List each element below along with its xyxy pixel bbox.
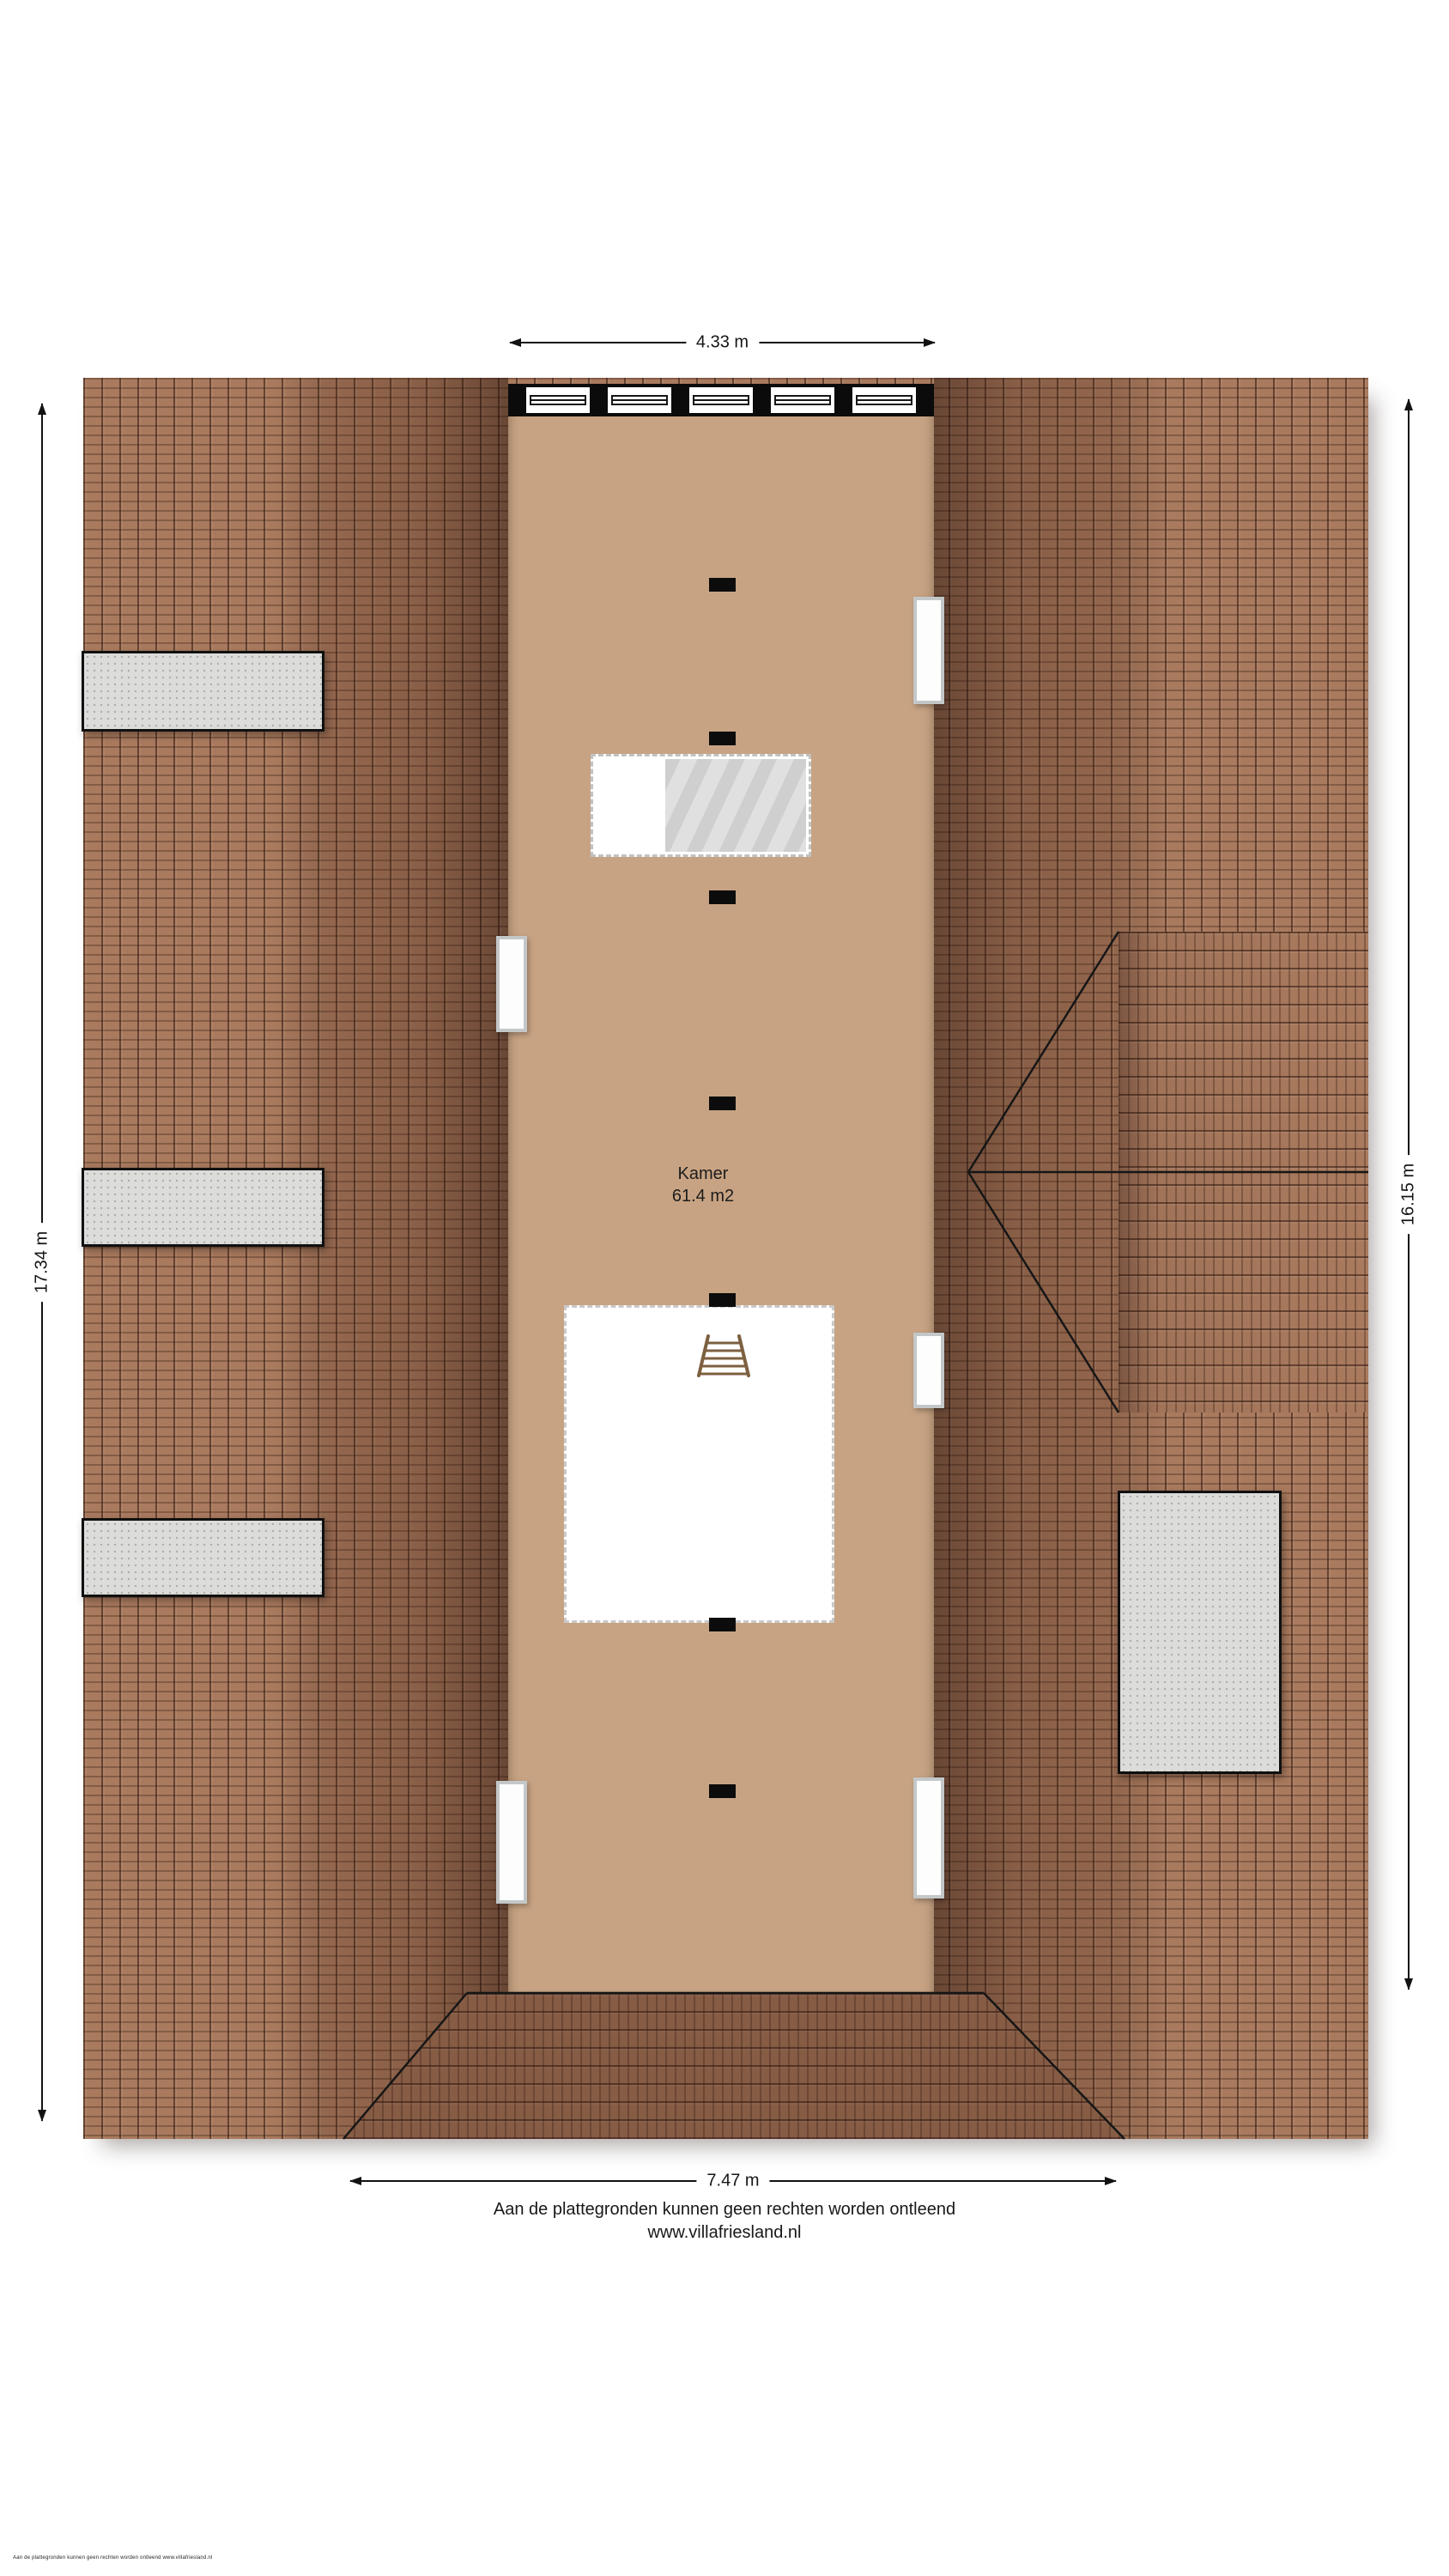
- roof-window: [913, 597, 944, 704]
- roof-slope-left: [324, 378, 508, 2139]
- wall-stub: [709, 1618, 736, 1631]
- facade-window: [689, 387, 753, 413]
- room-name: Kamer: [609, 1163, 797, 1185]
- room-area: 61.4 m2: [609, 1185, 797, 1207]
- arrow-left-icon: [349, 2177, 361, 2185]
- chimney-block: [82, 1168, 324, 1247]
- roof-window: [913, 1777, 944, 1899]
- arrow-down-icon: [38, 2110, 46, 2122]
- roof-window: [913, 1333, 944, 1408]
- chimney-block: [82, 1518, 324, 1597]
- roof-slope-right: [934, 378, 1119, 2139]
- arrow-left-icon: [509, 338, 521, 347]
- disclaimer-text: Aan de plattegronden kunnen geen rechten…: [0, 2198, 1449, 2221]
- footer: Aan de plattegronden kunnen geen rechten…: [0, 2198, 1449, 2245]
- chimney-block: [82, 651, 324, 732]
- chimney-block: [1118, 1491, 1282, 1774]
- arrow-up-icon: [38, 403, 46, 415]
- dimension-bottom: 7.47 m: [350, 2174, 1116, 2188]
- void-opening: [564, 1305, 834, 1623]
- facade-window: [608, 387, 671, 413]
- facade-window: [526, 387, 590, 413]
- dimension-label: 17.34 m: [33, 1223, 52, 1302]
- wall-stub: [709, 1293, 736, 1307]
- window-glazing-icon: [856, 395, 912, 405]
- roof-window: [496, 1781, 527, 1904]
- stairwell: [591, 754, 811, 857]
- wall-stub: [709, 1097, 736, 1110]
- roof-wing-right: [1119, 932, 1368, 1413]
- facade-window: [852, 387, 916, 413]
- ladder-icon: [694, 1334, 754, 1378]
- window-glazing-icon: [774, 395, 831, 405]
- wall-stub: [709, 578, 736, 592]
- dimension-right: 16.15 m: [1402, 399, 1416, 1990]
- room-label: Kamer 61.4 m2: [609, 1163, 797, 1207]
- arrow-up-icon: [1404, 398, 1413, 410]
- floor-plan: Kamer 61.4 m2 4.33 m: [0, 0, 1449, 2576]
- dimension-label: 16.15 m: [1399, 1155, 1419, 1234]
- window-glazing-icon: [611, 395, 668, 405]
- wall-stub: [709, 890, 736, 904]
- front-facade-wall: [508, 384, 934, 416]
- fine-print-text: Aan de plattegronden kunnen geen rechten…: [13, 2555, 212, 2561]
- dimension-left: 17.34 m: [35, 404, 49, 2121]
- arrow-right-icon: [924, 338, 936, 347]
- window-glazing-icon: [530, 395, 586, 405]
- window-glazing-icon: [693, 395, 749, 405]
- wall-stub: [709, 732, 736, 745]
- roof-shading-left: [273, 378, 324, 2139]
- arrow-right-icon: [1105, 2177, 1117, 2185]
- dimension-label: 4.33 m: [686, 333, 759, 353]
- dimension-top: 4.33 m: [510, 336, 935, 349]
- facade-window: [771, 387, 834, 413]
- website-text: www.villafriesland.nl: [0, 2221, 1449, 2245]
- roof-valley-shade: [1119, 932, 1368, 1413]
- arrow-down-icon: [1404, 1978, 1413, 1990]
- wall-stub: [709, 1784, 736, 1798]
- dimension-label: 7.47 m: [696, 2172, 769, 2191]
- roof-window: [496, 936, 527, 1032]
- stair-treads: [665, 759, 806, 852]
